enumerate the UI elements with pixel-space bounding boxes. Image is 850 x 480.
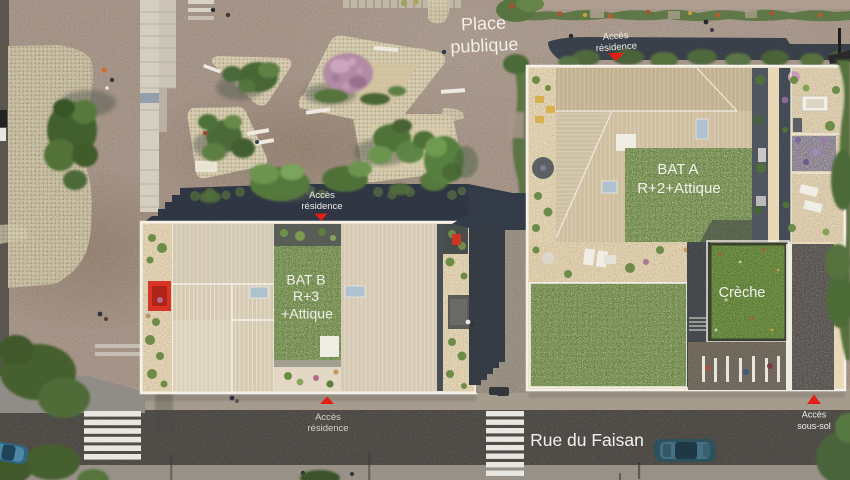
svg-text:+Attique: +Attique [281,306,333,322]
svg-text:Accès: Accès [309,190,335,201]
svg-text:publique: publique [450,34,519,57]
svg-text:BAT A: BAT A [657,161,698,178]
svg-text:Accès: Accès [315,412,341,423]
svg-text:résidence: résidence [301,201,342,212]
svg-text:résidence: résidence [307,423,348,434]
svg-text:Place: Place [461,13,507,35]
svg-text:Crèche: Crèche [719,285,766,301]
svg-text:Accès: Accès [802,410,827,420]
svg-text:BAT B: BAT B [286,272,325,288]
svg-text:R+2+Attique: R+2+Attique [637,180,720,197]
svg-text:sous-sol: sous-sol [797,421,831,431]
svg-text:Rue du Faisan: Rue du Faisan [530,430,644,450]
svg-text:R+3: R+3 [293,288,319,304]
